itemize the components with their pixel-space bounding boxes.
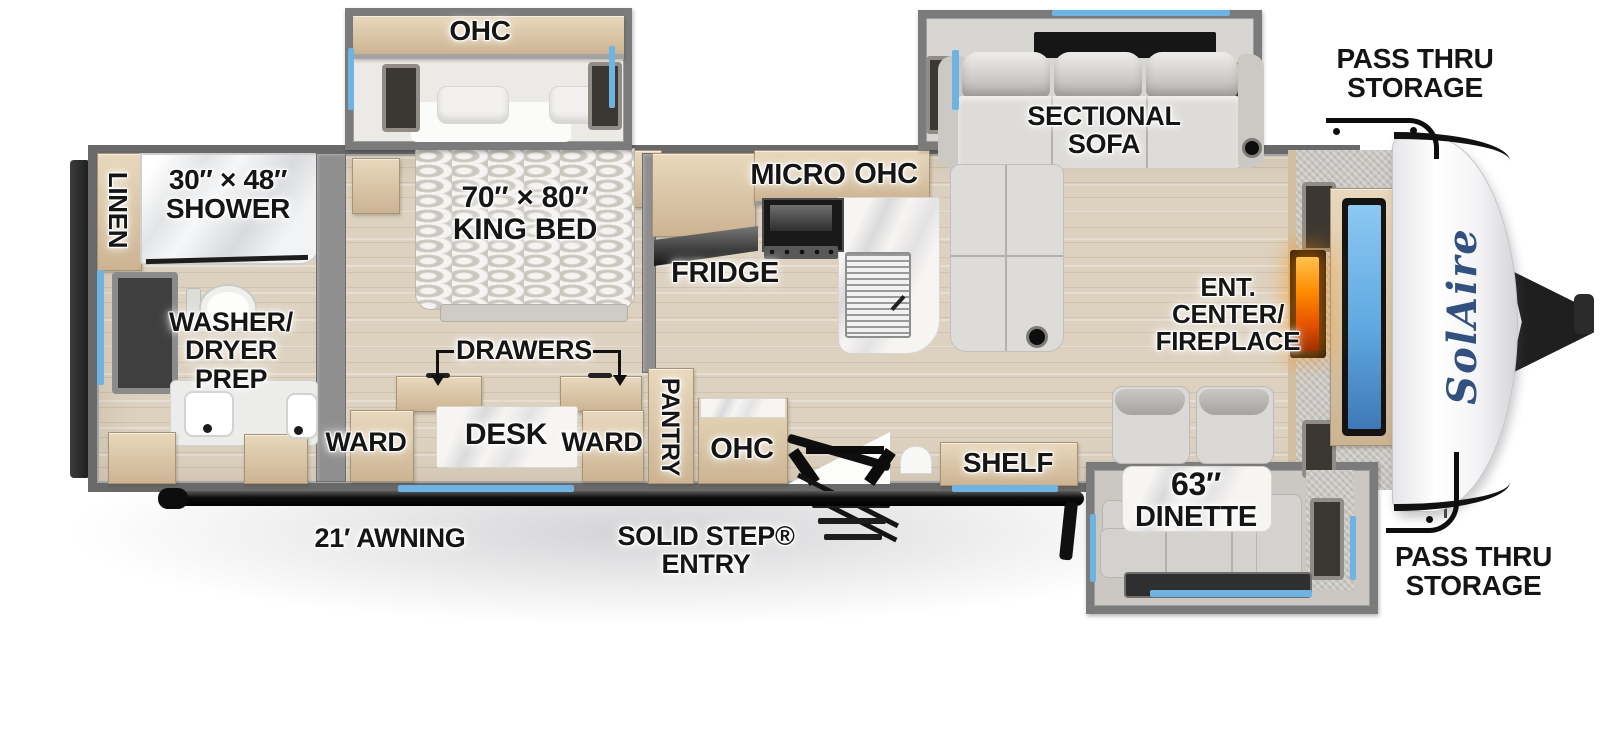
sofa-cupholder-right <box>1242 138 1262 158</box>
pantry-label: PANTRY <box>657 363 683 491</box>
awning-label: 21′ AWNING <box>300 522 480 554</box>
awning-bar <box>168 491 1084 506</box>
bracket-rivet-top-1 <box>1333 128 1340 135</box>
washer-dryer-label: WASHER/ DRYER PREP <box>146 308 316 393</box>
chair-left-back <box>1115 389 1185 415</box>
drawers-arrow-left-line <box>436 350 439 376</box>
entry-ohc-top <box>700 398 786 418</box>
fridge-cabinet <box>652 153 756 237</box>
step-rung-3 <box>824 534 882 540</box>
fridge-label: FRIDGE <box>655 258 795 288</box>
pass-thru-bottom-line2-text: STORAGE <box>1386 571 1561 600</box>
sofa-back-cushion-3 <box>1146 52 1238 98</box>
washer-line2-text: DRYER PREP <box>146 336 316 393</box>
range-microwave <box>762 198 844 252</box>
pass-thru-bottom-label: PASS THRU STORAGE <box>1386 542 1561 601</box>
pass-thru-bottom-line1-text: PASS THRU <box>1386 542 1561 571</box>
ent-line1-text: ENT. <box>1152 274 1304 301</box>
king-bed-size-text: 70″ × 80″ <box>430 182 620 214</box>
drawers-arrow-right-connector <box>593 350 621 353</box>
sectional-sofa-label: SECTIONAL SOFA <box>992 116 1216 144</box>
rear-wall-window-accent <box>97 270 104 385</box>
drawers-label: DRAWERS <box>452 336 596 364</box>
bath-cabinet-right <box>244 434 308 484</box>
bed-bench <box>440 304 628 322</box>
floorplan-canvas: LINEN 30″ × 48″ SHOWER WASHER/ DRYER PRE… <box>0 0 1600 731</box>
king-bed-name-text: KING BED <box>430 214 620 246</box>
drawer-handle-right <box>588 373 612 378</box>
brand-logo: SolAire <box>1438 206 1486 426</box>
wardrobe-right-label: WARD <box>556 428 648 456</box>
faucet-right <box>294 426 303 435</box>
drawers-arrow-right-line <box>618 350 621 376</box>
dinette-window-accent-left <box>1090 514 1096 582</box>
ent-line3-text: FIREPLACE <box>1152 328 1304 355</box>
drawers-arrow-right-head <box>613 375 627 386</box>
microwave-door <box>770 205 832 231</box>
drawers-arrow-left-head <box>431 375 445 386</box>
wardrobe-left-label: WARD <box>320 428 412 456</box>
dinette-size-text: 63″ <box>1130 468 1262 502</box>
shelf-window-accent <box>952 485 1058 492</box>
pillow-left <box>437 86 509 124</box>
shelf-label: SHELF <box>944 448 1072 478</box>
sofa-slide-top-accent <box>1052 10 1230 16</box>
desk-label: DESK <box>446 420 566 450</box>
bedroom-window-right <box>588 62 622 130</box>
pass-thru-bracket-top <box>1326 118 1439 159</box>
washer-line1-text: WASHER/ <box>146 308 316 336</box>
hitch-coupler <box>1574 294 1594 334</box>
desk-window-accent <box>398 485 574 492</box>
step-rung-2 <box>818 518 886 524</box>
entry-line2-text: ENTRY <box>608 550 804 578</box>
entry-ohc-label: OHC <box>700 432 784 466</box>
shower-size-text: 30″ × 48″ <box>148 165 308 194</box>
bedroom-ohc-label: OHC <box>430 16 530 46</box>
faucet-left <box>203 424 212 433</box>
ent-line2-text: CENTER/ <box>1152 301 1304 328</box>
entry-line1-text: SOLID STEP® <box>608 522 804 550</box>
sofa-back-cushion-2 <box>1054 52 1142 98</box>
sofa-cupholder-chaise <box>1026 326 1048 348</box>
kitchen-ohc-label: OHC <box>850 158 922 190</box>
dinette-window-right <box>1310 498 1344 580</box>
bracket-rivet-bottom <box>1426 516 1433 523</box>
chair-left <box>1112 386 1190 464</box>
solid-step-entry-label: SOLID STEP® ENTRY <box>608 522 804 579</box>
bracket-rivet-top-2 <box>1410 127 1417 134</box>
linen-label: LINEN <box>104 140 130 280</box>
tv-screen <box>1348 205 1381 429</box>
solid-step-top-bar <box>806 446 884 454</box>
sofa-chaise <box>950 164 1064 352</box>
shower-name-text: SHOWER <box>148 194 308 223</box>
sofa-back-cushion-1 <box>962 52 1050 98</box>
chair-right-back <box>1199 389 1269 415</box>
ent-center-label: ENT. CENTER/ FIREPLACE <box>1152 274 1304 355</box>
dinette-label: 63″ DINETTE <box>1130 468 1262 532</box>
pass-thru-top-line1-text: PASS THRU <box>1330 44 1500 73</box>
dinette-window-accent-bottom <box>1150 590 1312 597</box>
bath-cabinet-left <box>108 432 176 484</box>
bedroom-window-accent-left <box>348 48 354 110</box>
pass-thru-top-line2-text: STORAGE <box>1330 73 1500 102</box>
shower-label: 30″ × 48″ SHOWER <box>148 165 308 224</box>
awning-end-cap <box>158 488 188 509</box>
pass-thru-top-label: PASS THRU STORAGE <box>1330 44 1500 103</box>
nightstand-left <box>352 158 400 214</box>
rear-bumper <box>70 160 90 478</box>
chair-right <box>1196 386 1274 464</box>
bedroom-window-left <box>382 64 420 132</box>
dinette-window-accent-right <box>1350 516 1356 580</box>
dinette-name-text: DINETTE <box>1130 502 1262 532</box>
king-bed-label: 70″ × 80″ KING BED <box>430 182 620 245</box>
pass-thru-bracket-bottom <box>1386 452 1459 533</box>
bedroom-window-accent-right <box>609 46 615 108</box>
entry-door-stop <box>900 446 932 474</box>
micro-label: MICRO <box>758 160 838 190</box>
sofa-window-accent-left <box>952 50 959 110</box>
